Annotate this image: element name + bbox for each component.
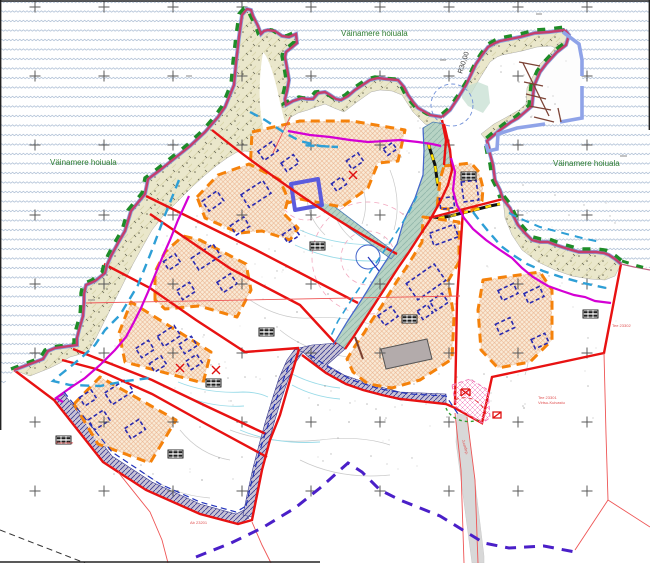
svg-text:Väinamere hoiuala: Väinamere hoiuala (50, 158, 117, 167)
svg-text:Väinamere hoiuala: Väinamere hoiuala (341, 29, 408, 38)
svg-text:Rannatee: Rannatee (56, 440, 74, 445)
svg-text:Virtsu-Kuivastu: Virtsu-Kuivastu (538, 400, 565, 405)
svg-text:Tee 23302: Tee 23302 (612, 323, 631, 328)
svg-text:Väinamere hoiuala: Väinamere hoiuala (553, 159, 620, 168)
svg-text:Ab 23201: Ab 23201 (190, 520, 208, 525)
